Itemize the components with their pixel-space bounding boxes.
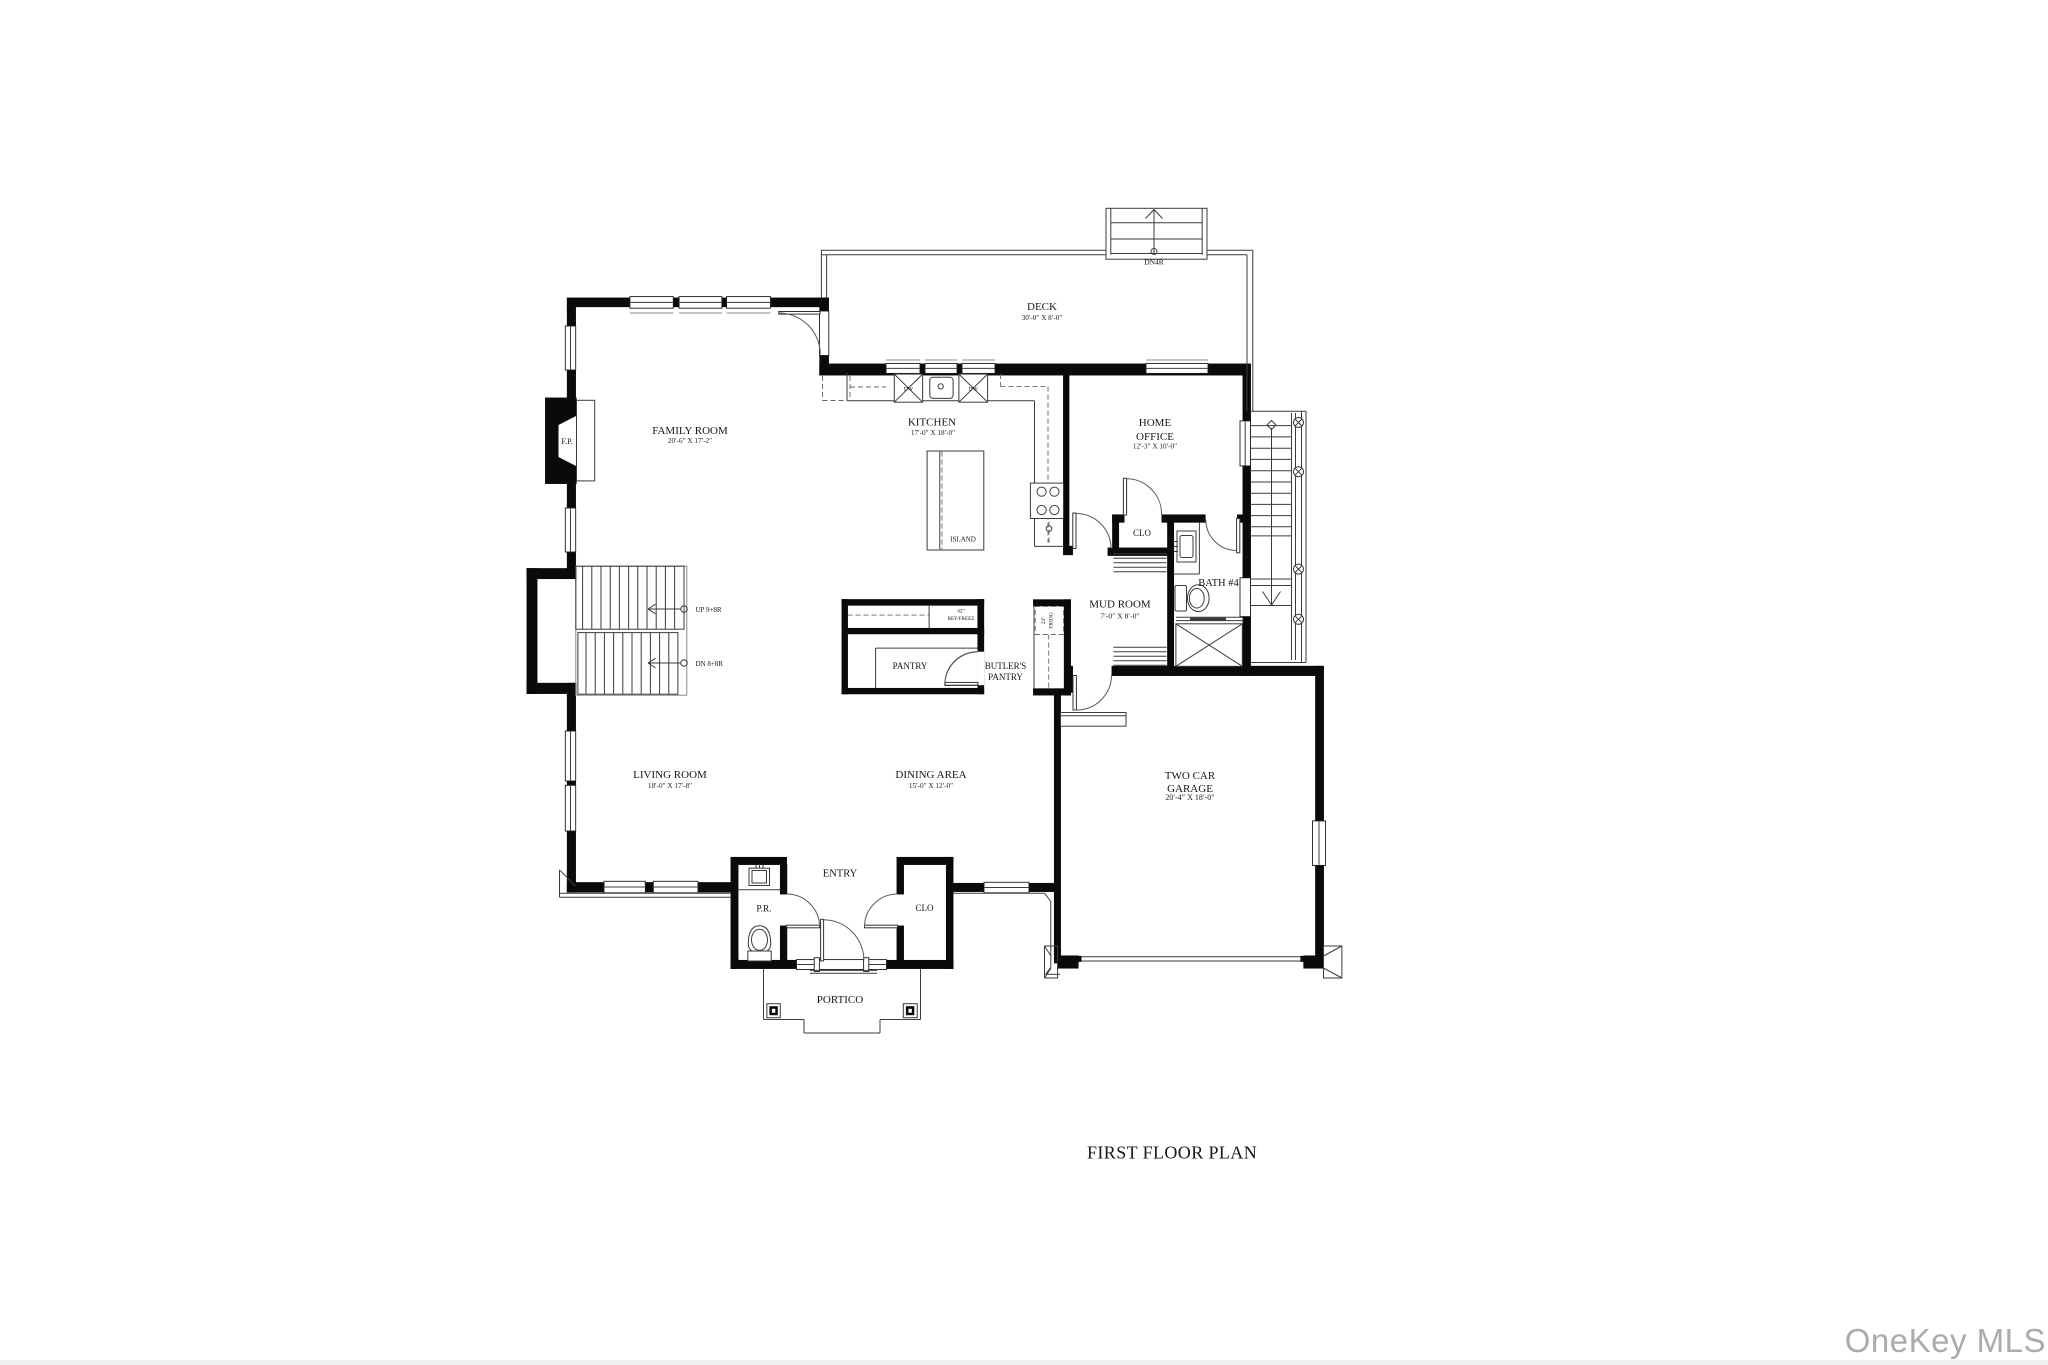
svg-text:DN4R: DN4R — [1144, 258, 1164, 267]
svg-text:DINING AREA: DINING AREA — [895, 769, 966, 781]
svg-text:20′-4″ X 18′-0″: 20′-4″ X 18′-0″ — [1165, 793, 1214, 802]
svg-text:MUD ROOM: MUD ROOM — [1089, 599, 1151, 611]
svg-text:KITCHEN: KITCHEN — [908, 416, 956, 428]
svg-text:CLO: CLO — [916, 903, 935, 913]
svg-text:OneKey MLS: OneKey MLS — [1845, 1322, 2046, 1359]
svg-text:20′-6″ X 17′-2″: 20′-6″ X 17′-2″ — [668, 437, 712, 445]
svg-text:PORTICO: PORTICO — [817, 994, 863, 1006]
svg-text:F.P.: F.P. — [561, 437, 572, 446]
svg-text:HOME: HOME — [1139, 417, 1172, 429]
svg-text:OFFICE: OFFICE — [1136, 431, 1174, 443]
svg-text:LIVING ROOM: LIVING ROOM — [633, 769, 707, 781]
svg-text:FAMILY ROOM: FAMILY ROOM — [652, 425, 728, 437]
svg-text:ENTRY: ENTRY — [823, 869, 858, 880]
svg-text:BUTLER'S: BUTLER'S — [985, 661, 1027, 671]
svg-text:PANTRY: PANTRY — [988, 672, 1023, 682]
svg-text:24″: 24″ — [1041, 617, 1047, 625]
svg-text:DECK: DECK — [1027, 301, 1057, 313]
svg-text:FIRST FLOOR PLAN: FIRST FLOOR PLAN — [1087, 1143, 1257, 1163]
svg-text:CLO: CLO — [1133, 528, 1152, 538]
svg-text:FRIDG: FRIDG — [1049, 612, 1055, 629]
svg-text:P.R.: P.R. — [756, 905, 771, 915]
svg-text:TWO CAR: TWO CAR — [1165, 770, 1216, 782]
svg-text:18′-0″ X 17′-8″: 18′-0″ X 17′-8″ — [648, 782, 692, 790]
svg-text:DW: DW — [904, 387, 914, 393]
svg-text:42″: 42″ — [957, 609, 965, 615]
svg-text:15′-0″ X 12′-0″: 15′-0″ X 12′-0″ — [909, 782, 953, 790]
svg-text:REF/FREEZ: REF/FREEZ — [948, 616, 975, 622]
svg-text:ISLAND: ISLAND — [950, 536, 976, 544]
svg-text:UP 9+8R: UP 9+8R — [696, 606, 722, 614]
svg-text:30′-0″ X 8′-0″: 30′-0″ X 8′-0″ — [1022, 314, 1063, 322]
svg-text:7′-0″ X 8′-0″: 7′-0″ X 8′-0″ — [1100, 612, 1139, 621]
svg-text:PANTRY: PANTRY — [893, 661, 928, 671]
svg-text:17′-0″ X 18′-0″: 17′-0″ X 18′-0″ — [911, 429, 955, 437]
svg-text:DW: DW — [969, 387, 979, 393]
svg-text:12′-3″ X 10′-0″: 12′-3″ X 10′-0″ — [1133, 443, 1177, 451]
svg-text:DN 8+8R: DN 8+8R — [696, 660, 724, 668]
svg-text:BATH #4: BATH #4 — [1198, 578, 1239, 589]
